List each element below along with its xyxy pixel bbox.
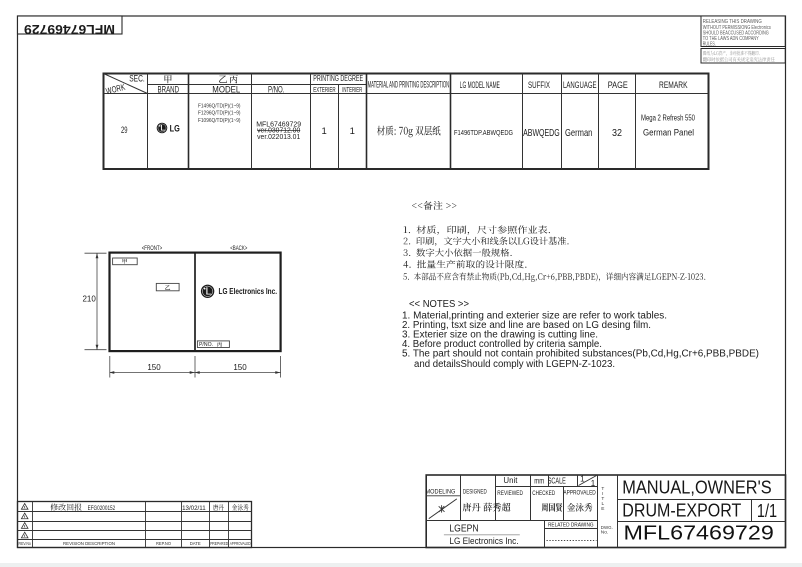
svg-text:13/02/11: 13/02/11 [182, 505, 206, 512]
svg-text:INTERIER: INTERIER [342, 85, 362, 94]
svg-text:<< NOTES >>: << NOTES >> [409, 299, 469, 310]
svg-text:29: 29 [121, 125, 128, 136]
svg-text:EXTERIER: EXTERIER [313, 85, 335, 94]
svg-text:SUFFIX: SUFFIX [528, 80, 550, 90]
svg-text:and detailsShould comply with: and detailsShould comply with LGEPN-Z-10… [414, 359, 615, 370]
svg-text:REP.NO: REP.NO [156, 541, 171, 546]
svg-text:LANGUAGE: LANGUAGE [563, 80, 597, 90]
svg-text:REMARK: REMARK [659, 80, 688, 90]
svg-text:F1296Q/TD(P)(1~9): F1296Q/TD(P)(1~9) [198, 111, 241, 117]
svg-text:MFL67469729: MFL67469729 [624, 523, 774, 545]
svg-text:MFL67469729: MFL67469729 [24, 22, 115, 37]
svg-text:DATE: DATE [190, 541, 201, 546]
svg-text:LG Electronics Inc.: LG Electronics Inc. [449, 536, 518, 547]
svg-text:Mega 2 Refresh 550: Mega 2 Refresh 550 [641, 114, 696, 123]
svg-text:1: 1 [321, 126, 326, 137]
svg-text:1: 1 [350, 126, 355, 137]
svg-text:150: 150 [147, 363, 161, 372]
svg-text:REVISION DESCRIPTION: REVISION DESCRIPTION [63, 541, 115, 546]
svg-text:PRINTING DEGREE: PRINTING DEGREE [313, 74, 363, 83]
svg-text:LG Electronics Inc.: LG Electronics Inc. [219, 287, 278, 296]
svg-text:ver.022013.01: ver.022013.01 [257, 132, 300, 141]
svg-text:32: 32 [612, 128, 622, 139]
svg-text:RELATED DRAWING: RELATED DRAWING [548, 522, 594, 528]
svg-text:<BACK>: <BACK> [230, 245, 247, 252]
svg-text:EFG0200152: EFG0200152 [88, 505, 116, 512]
svg-text:German: German [565, 128, 592, 139]
svg-text:PAGE: PAGE [608, 80, 628, 90]
svg-text:MODEL: MODEL [212, 85, 240, 95]
svg-text:BRAND: BRAND [158, 85, 180, 95]
svg-text:P/NO.: P/NO. [268, 85, 285, 95]
svg-text:ABWQEDG: ABWQEDG [523, 127, 560, 139]
svg-text:SEC.: SEC. [129, 74, 145, 84]
svg-text:MODELING: MODELING [426, 488, 456, 495]
svg-text:REV.No: REV.No [19, 541, 32, 546]
svg-text:<FRONT>: <FRONT> [142, 245, 163, 252]
svg-text:mm: mm [534, 476, 544, 486]
svg-text:MATERIAL AND PRINTING DESCRIPT: MATERIAL AND PRINTING DESCRIPTION [368, 80, 450, 90]
svg-text:LG: LG [170, 124, 180, 135]
svg-text:MANUAL,OWNER'S: MANUAL,OWNER'S [622, 478, 771, 498]
svg-text:P/NO.: P/NO. [199, 342, 213, 348]
svg-text:DRUM-EXPORT: DRUM-EXPORT [622, 501, 741, 521]
svg-text:CHECKED: CHECKED [532, 490, 555, 497]
svg-text:DESIGNED: DESIGNED [463, 488, 487, 495]
svg-text:1: 1 [591, 479, 596, 488]
svg-text:LGEPN: LGEPN [449, 523, 478, 534]
svg-text:210: 210 [82, 294, 96, 303]
svg-text:REVIEWED: REVIEWED [497, 490, 523, 497]
svg-text:Unit: Unit [503, 475, 518, 485]
svg-text:PREPARED: PREPARED [210, 541, 228, 546]
svg-text:German Panel: German Panel [643, 127, 694, 137]
svg-text:E: E [601, 506, 604, 512]
svg-text:APPROVALED: APPROVALED [230, 541, 251, 546]
svg-text:1/1: 1/1 [757, 501, 777, 521]
svg-text:LG MODEL NAME: LG MODEL NAME [460, 80, 500, 90]
svg-text:150: 150 [233, 363, 247, 372]
svg-text:F1496TDP.ABWQEDG: F1496TDP.ABWQEDG [454, 128, 513, 137]
svg-text:APPROVALED: APPROVALED [563, 489, 596, 496]
svg-text:F1496Q/TD(P)(1~9): F1496Q/TD(P)(1~9) [198, 103, 241, 109]
svg-text:RULES.: RULES. [703, 42, 716, 48]
svg-text:5. The part should not contain: 5. The part should not contain prohibite… [402, 348, 759, 359]
svg-text:SCALE: SCALE [548, 476, 566, 486]
svg-text:F1096Q/TD(P)(1~9): F1096Q/TD(P)(1~9) [198, 118, 241, 124]
svg-text:No.: No. [601, 530, 608, 536]
svg-text:1: 1 [580, 475, 585, 484]
